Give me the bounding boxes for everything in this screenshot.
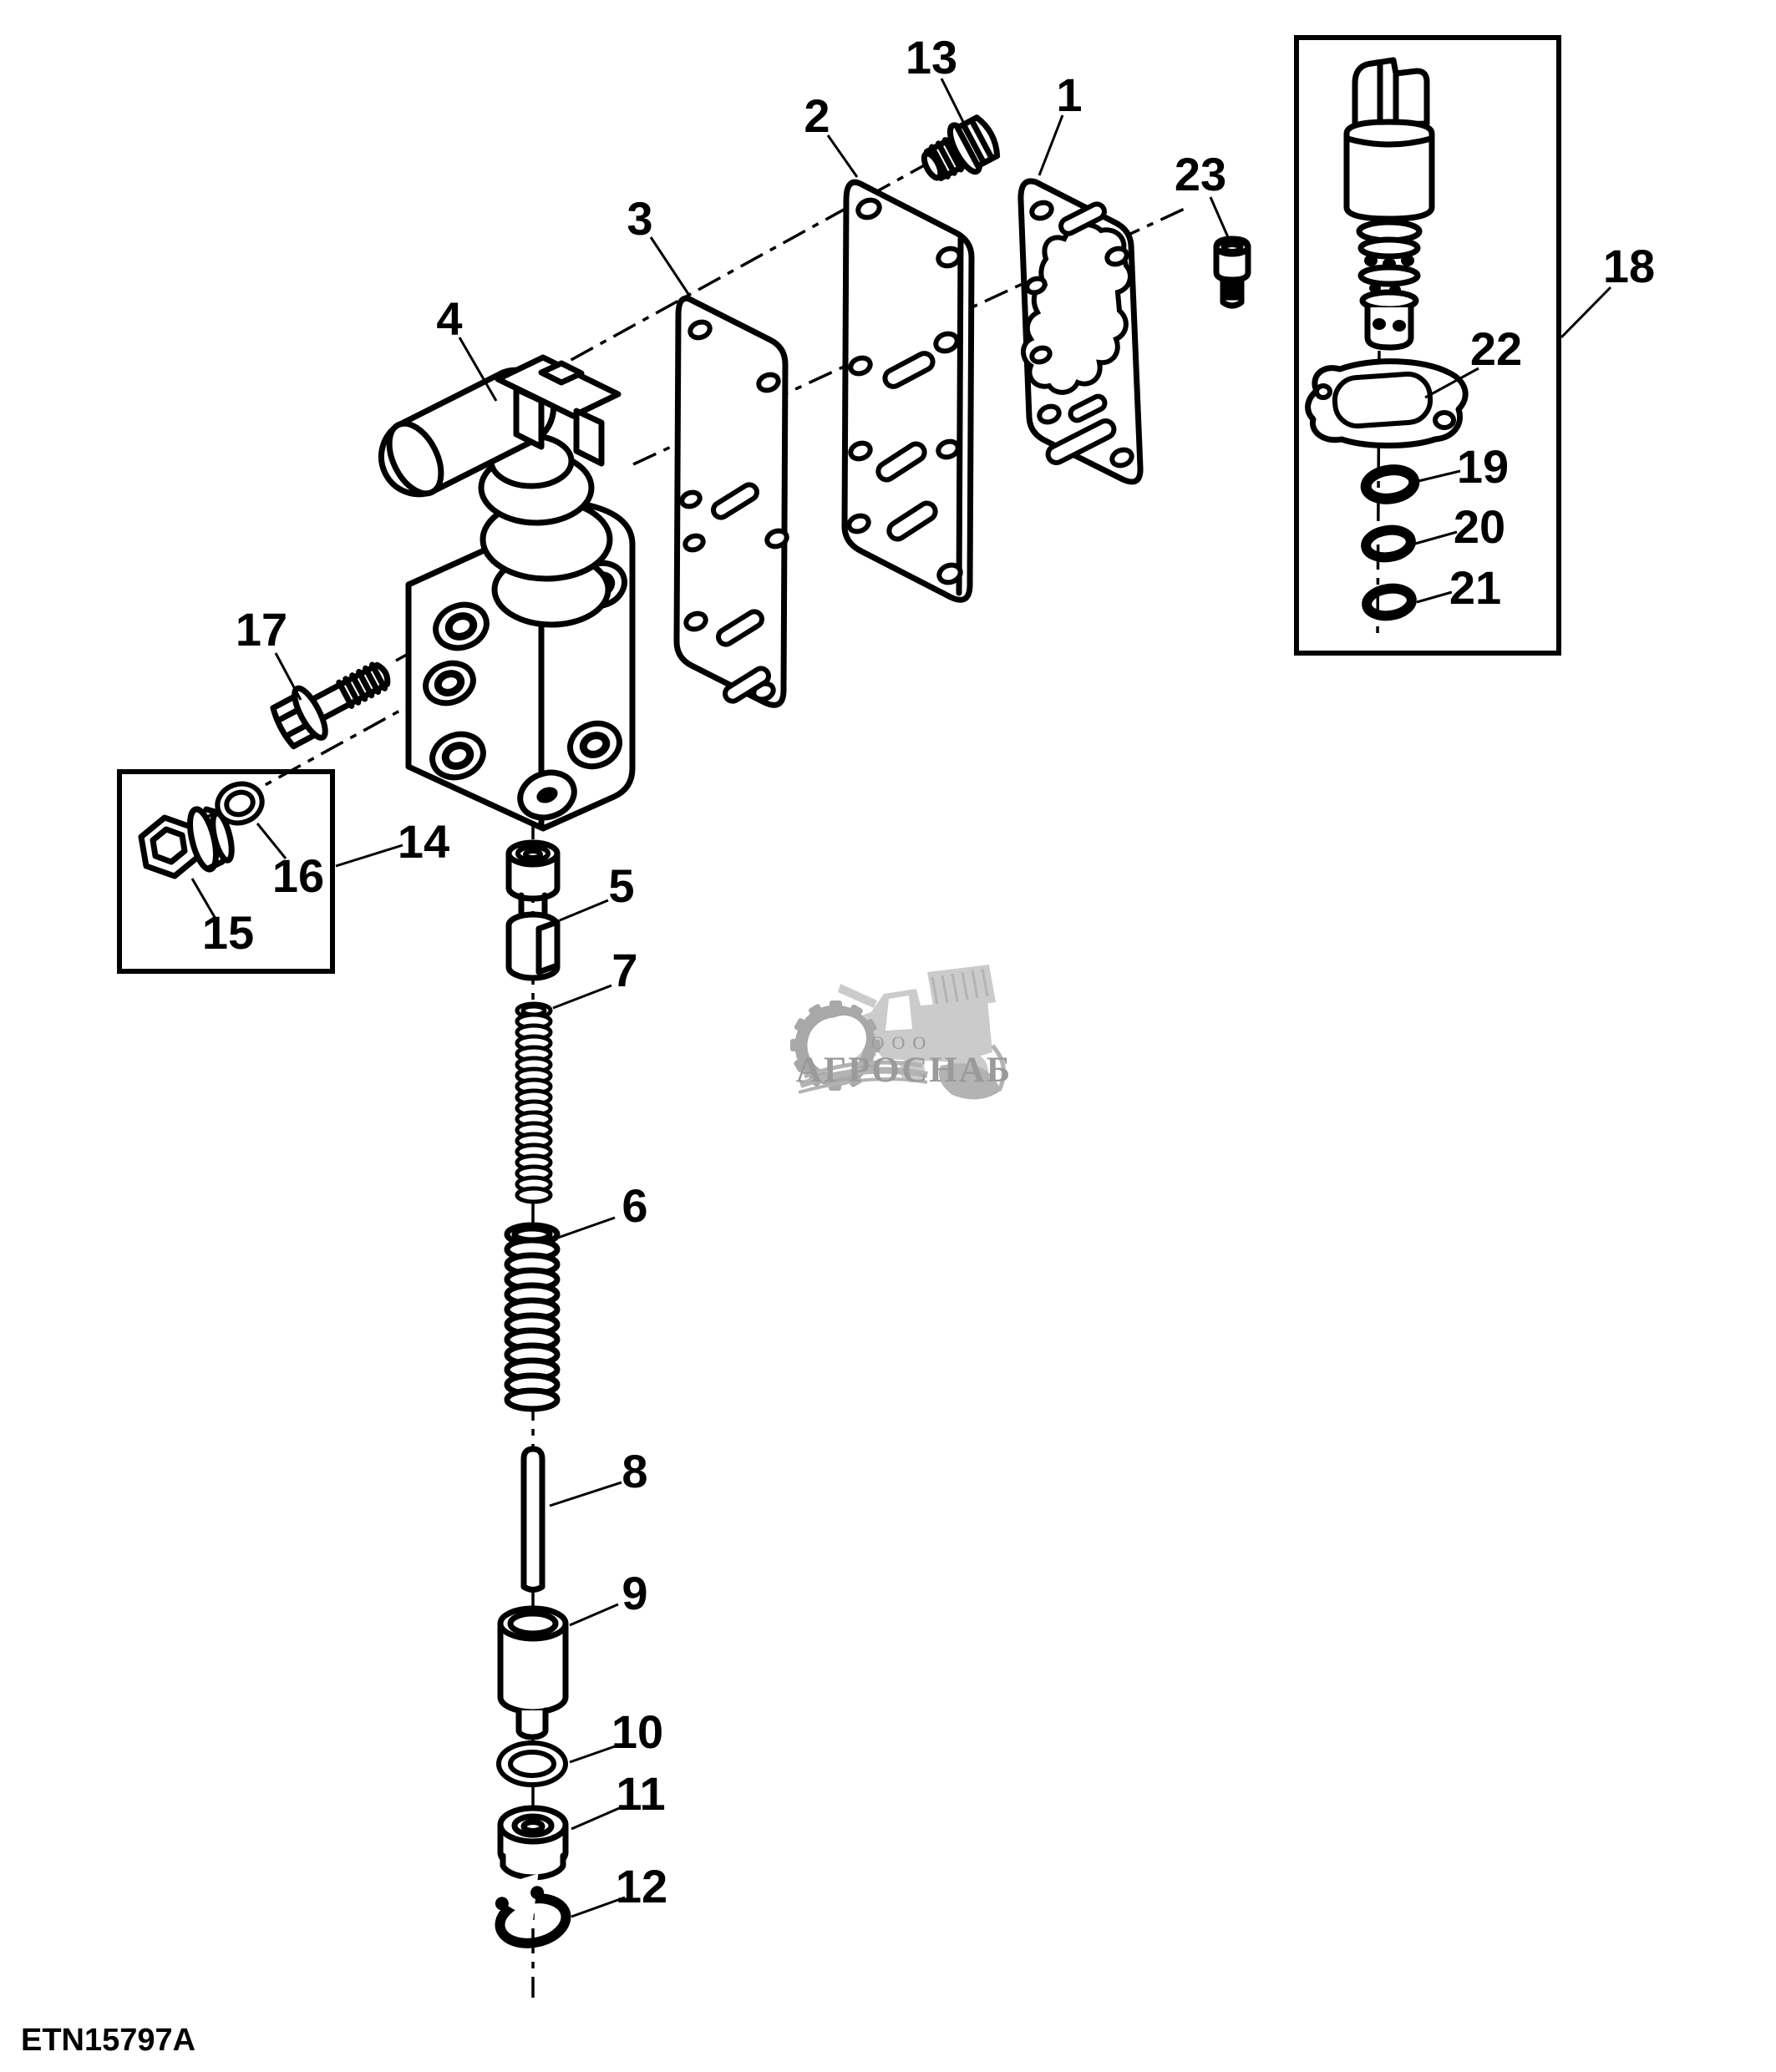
drawing-code: ETN15797A [21, 2023, 195, 2058]
callout-label-20: 20 [1454, 500, 1505, 553]
callout-label-19: 19 [1457, 440, 1509, 493]
watermark-company-name: АГРОСНАБ [796, 1051, 1012, 1090]
hex-bolt-17 [268, 649, 398, 753]
pin-8 [524, 1449, 542, 1590]
solenoid-gasket-22 [1308, 362, 1466, 446]
valve-plate-2 [845, 182, 972, 600]
callout-label-10: 10 [611, 1705, 663, 1758]
o-ring-10 [499, 1743, 566, 1785]
callout-label-1: 1 [1056, 68, 1082, 121]
o-ring-19 [1364, 467, 1416, 502]
separator-plate-3 [677, 298, 789, 705]
callout-label-8: 8 [622, 1445, 647, 1497]
flange-bolt-13 [915, 111, 1003, 191]
callout-label-17: 17 [236, 603, 287, 656]
socket-screw-23 [1216, 239, 1248, 306]
spring-6 [507, 1225, 557, 1409]
callout-label-12: 12 [616, 1860, 667, 1912]
callout-label-4: 4 [436, 292, 462, 345]
callout-label-3: 3 [627, 192, 652, 245]
callout-label-22: 22 [1470, 322, 1522, 375]
o-ring-21 [1365, 585, 1413, 618]
spring-7 [517, 1004, 551, 1202]
gasket-1 [1021, 181, 1140, 482]
seal-11 [500, 1808, 566, 1877]
callout-label-6: 6 [622, 1179, 647, 1232]
watermark: ООО АГРОСНАБ [790, 965, 1012, 1099]
callout-label-9: 9 [622, 1567, 647, 1619]
callout-label-15: 15 [202, 906, 254, 959]
callout-label-5: 5 [608, 859, 634, 912]
callout-label-23: 23 [1175, 148, 1226, 200]
callout-label-18: 18 [1603, 240, 1655, 292]
callout-label-2: 2 [804, 89, 830, 142]
spool-5 [509, 843, 557, 978]
callout-label-21: 21 [1449, 561, 1501, 614]
o-ring-20 [1364, 527, 1413, 560]
valve-body [378, 357, 632, 828]
parts-diagram-page: ООО АГРОСНАБ [0, 0, 1776, 2072]
callout-label-13: 13 [906, 31, 957, 84]
callout-label-7: 7 [611, 944, 637, 996]
callout-label-16: 16 [272, 849, 324, 902]
snap-ring-12 [481, 1870, 571, 1951]
callout-label-14: 14 [398, 815, 449, 868]
piston-9 [500, 1608, 566, 1737]
callout-label-11: 11 [616, 1767, 665, 1820]
exploded-view-canvas: ООО АГРОСНАБ [0, 0, 1776, 2072]
solenoid-valve [1347, 60, 1432, 347]
